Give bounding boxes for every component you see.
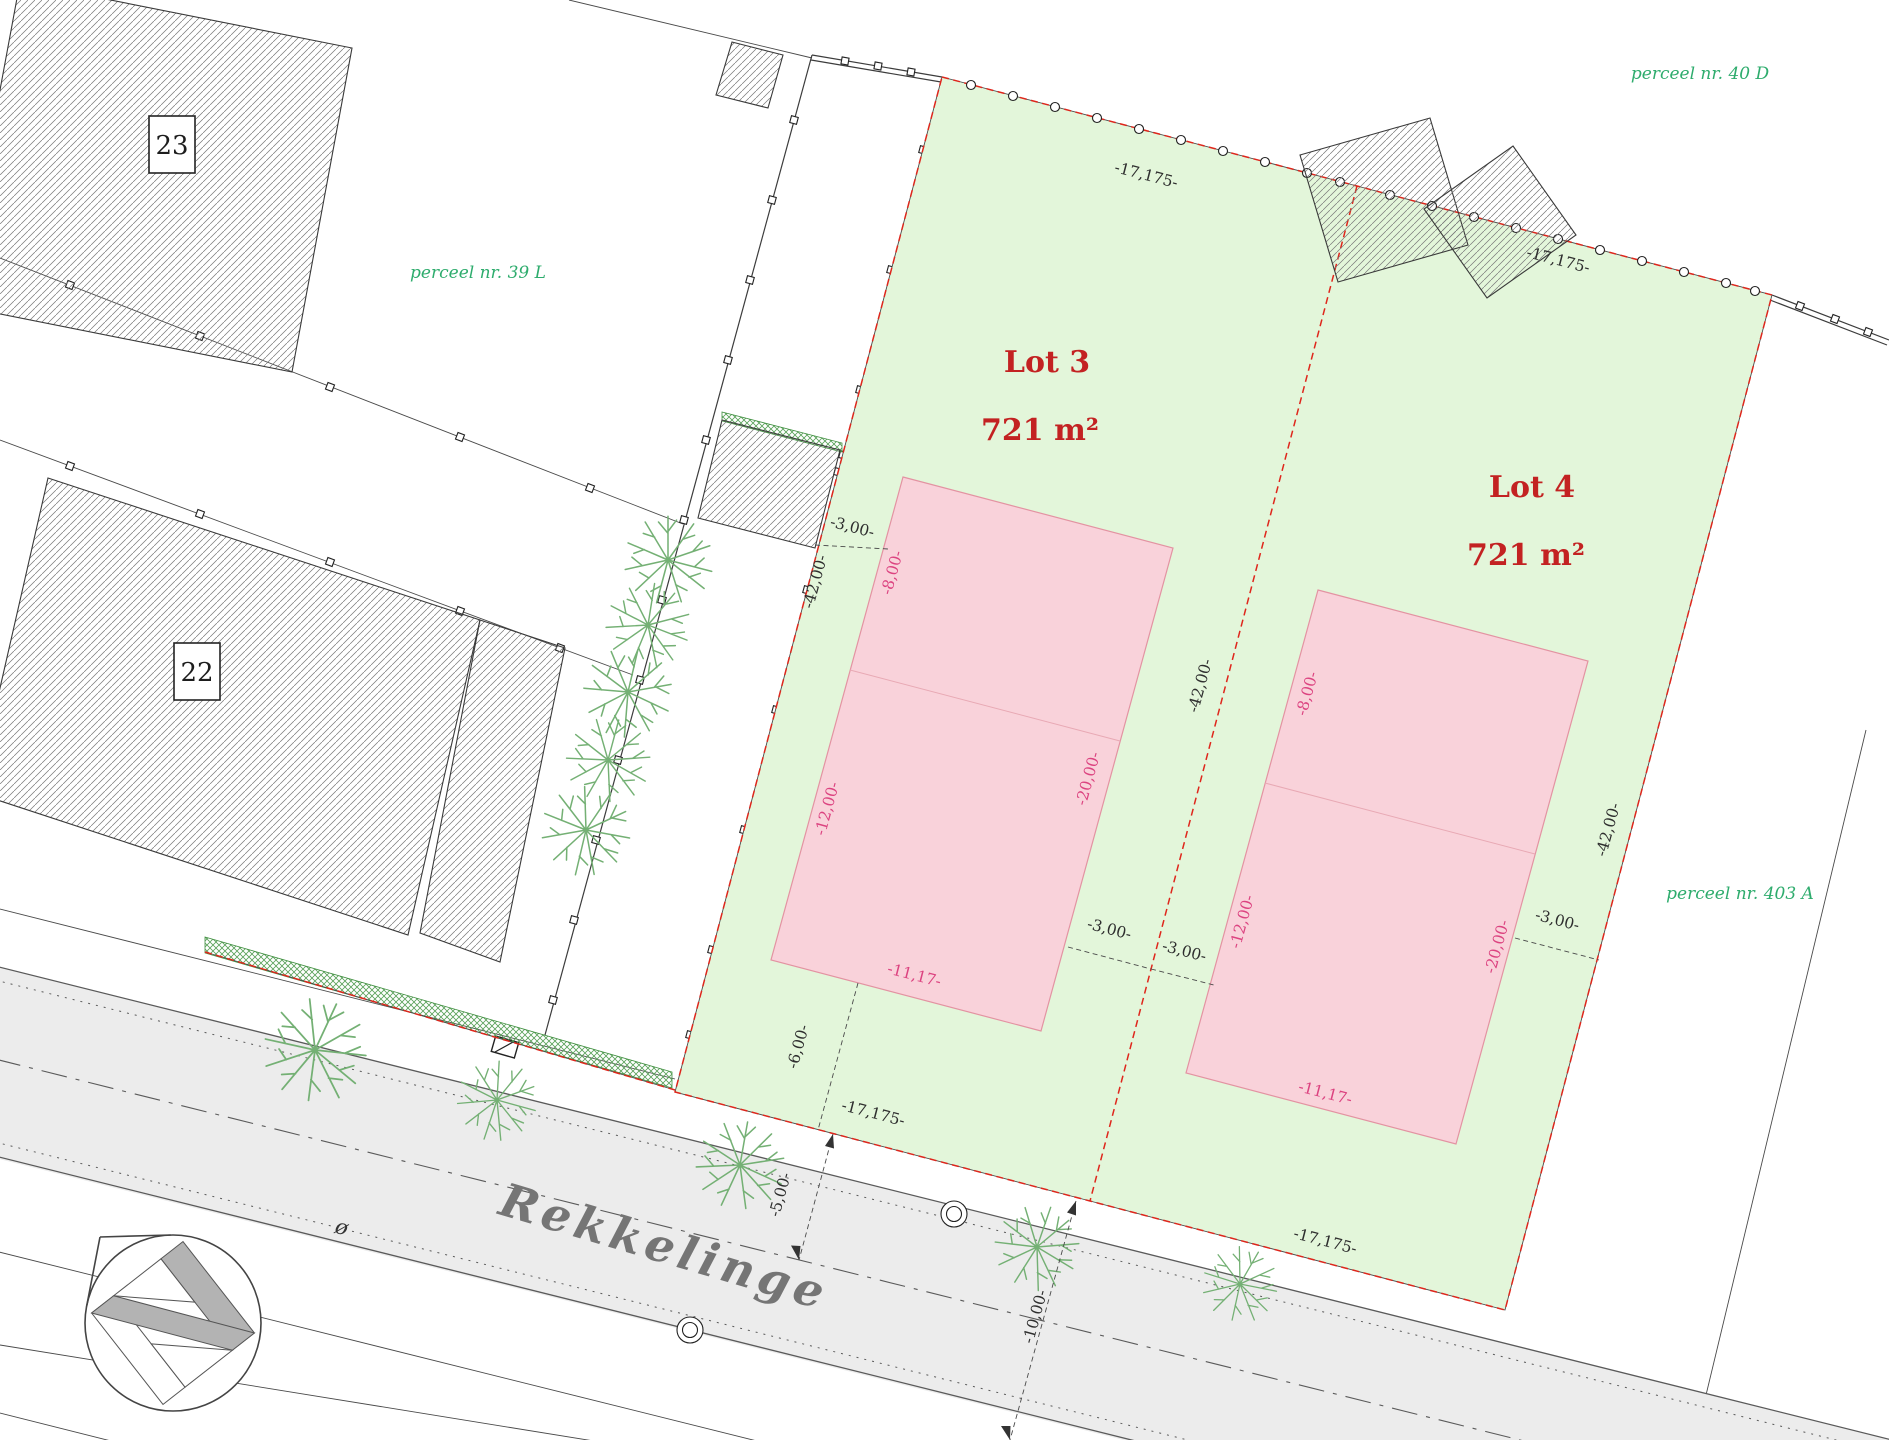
parcel-403A-label: perceel nr. 403 A xyxy=(1666,884,1814,904)
arrowhead-icon xyxy=(1067,1201,1076,1216)
parcel-line-south xyxy=(0,1345,600,1440)
building-22-main xyxy=(0,478,480,935)
north-arrow xyxy=(85,1235,261,1411)
lot3-name-label: Lot 3 xyxy=(1004,345,1090,380)
parcel-40D-label: perceel nr. 40 D xyxy=(1631,64,1770,84)
parcel-39L-label: perceel nr. 39 L xyxy=(410,263,546,283)
manhole-icon xyxy=(941,1201,967,1227)
tree-icon xyxy=(591,567,706,682)
parcel-line-south-2 xyxy=(0,1413,115,1440)
tree-icon xyxy=(529,773,644,888)
house-number-label: 23 xyxy=(155,131,188,161)
house-number-22: 22 xyxy=(174,643,220,700)
boundary-line xyxy=(569,0,812,58)
double-fence-ne xyxy=(1770,295,1889,345)
tree-icon xyxy=(625,516,711,602)
boundary-line-east xyxy=(1700,730,1866,1420)
site-plan: Rekkelinge ø xyxy=(0,0,1889,1440)
house-number-label: 22 xyxy=(180,658,213,688)
tree-icon xyxy=(558,710,658,810)
building-23 xyxy=(0,0,352,372)
lot4-area-label: 721 m² xyxy=(1467,538,1585,573)
site-plan-drawing: Rekkelinge ø xyxy=(0,0,1889,1440)
manhole-icon xyxy=(677,1317,703,1343)
arrowhead-icon xyxy=(1001,1426,1011,1440)
lot4-name-label: Lot 4 xyxy=(1489,470,1575,505)
arrowhead-icon xyxy=(825,1134,834,1149)
shed-north xyxy=(716,42,783,108)
lot-area-green xyxy=(675,77,1772,1310)
lots xyxy=(675,77,1772,1310)
lot3-area-label: 721 m² xyxy=(981,413,1099,448)
house-number-23: 23 xyxy=(149,116,195,173)
